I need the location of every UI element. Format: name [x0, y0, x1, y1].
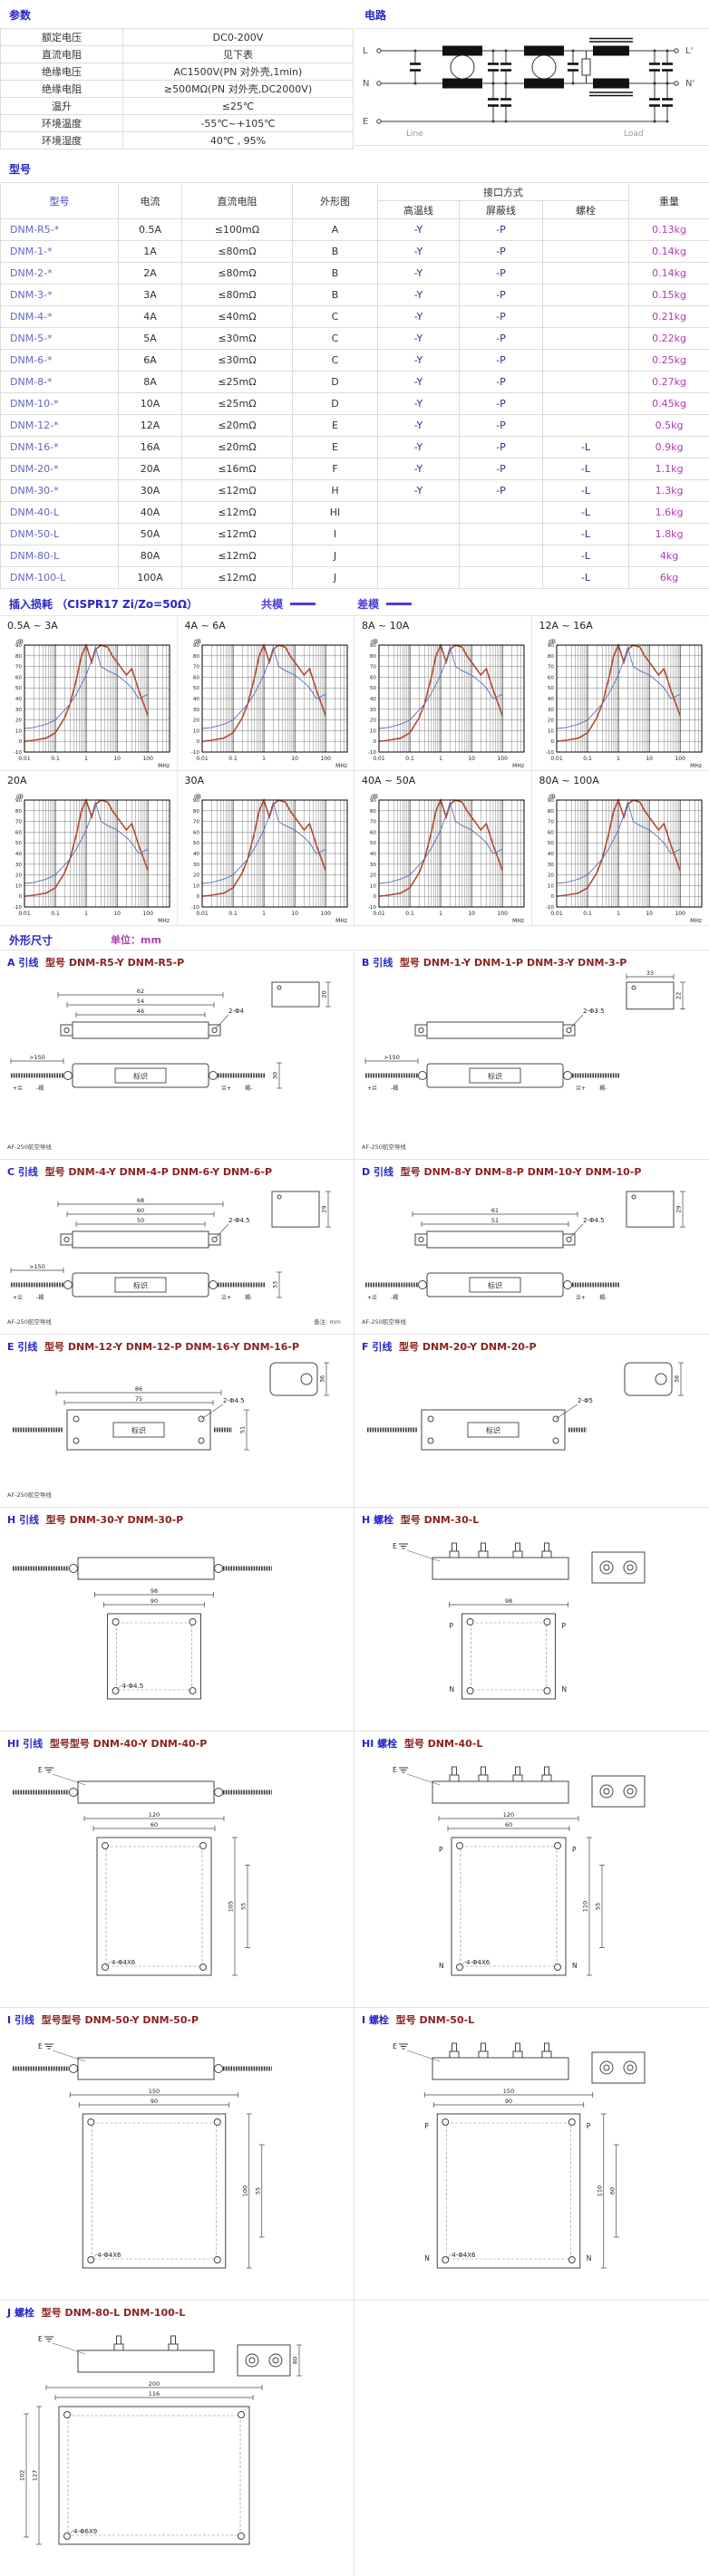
svg-text:100: 100: [497, 756, 508, 762]
svg-text:60: 60: [608, 2187, 616, 2195]
svg-text:dB: dB: [194, 639, 201, 645]
model-current: 1A: [119, 241, 182, 263]
svg-text:0.1: 0.1: [583, 911, 592, 917]
top-section: 参数 额定电压DC0-200V直流电阻见下表绝缘电压AC1500V(PN 对外壳…: [0, 0, 709, 154]
svg-text:80: 80: [370, 809, 377, 815]
svg-text:N: N: [587, 2254, 592, 2262]
model-list: 型号 DNM-40-L: [404, 1738, 483, 1750]
svg-text:1: 1: [262, 911, 266, 917]
dimension-cell-E: E 引线 型号 DNM-12-Y DNM-12-P DNM-16-Y DNM-1…: [0, 1335, 354, 1507]
svg-text:MHz: MHz: [690, 763, 702, 769]
model-weight: 1.1kg: [629, 458, 709, 480]
model-high_temp: [378, 567, 460, 589]
mount-kind: 引线: [15, 2014, 34, 2026]
model-shield: -P: [460, 263, 543, 285]
svg-text:MHz: MHz: [335, 763, 347, 769]
model-row: DNM-3-*3A≤80mΩB-Y-P0.15kg: [1, 285, 709, 306]
svg-text:>150: >150: [29, 1263, 45, 1270]
model-high_temp: [378, 502, 460, 524]
svg-text:E: E: [38, 1766, 43, 1774]
dimension-cell-header: H 螺栓 型号 DNM-30-L: [354, 1508, 709, 1527]
model-list: 型号 DNM-4-Y DNM-4-P DNM-6-Y DNM-6-P: [45, 1166, 272, 1178]
param-label: 环境温度: [1, 115, 123, 132]
svg-text:AF-250航空导线: AF-250航空导线: [362, 1317, 406, 1326]
chart-title: 8A ~ 10A: [354, 616, 531, 636]
legend-label: 共模: [261, 596, 283, 612]
outline-letter: H: [7, 1514, 15, 1526]
circuit-title: 电路: [355, 0, 709, 28]
mount-kind: 引线: [372, 1341, 392, 1353]
dimension-cell-header: E 引线 型号 DNM-12-Y DNM-12-P DNM-16-Y DNM-1…: [0, 1335, 354, 1354]
model-model: DNM-16-*: [1, 437, 119, 458]
svg-text:dB: dB: [549, 794, 556, 800]
param-value: AC1500V(PN 对外壳,1min): [123, 63, 354, 81]
svg-text:AF-250航空导线: AF-250航空导线: [7, 1491, 52, 1499]
svg-text:60: 60: [505, 1821, 512, 1828]
model-shield: -P: [460, 306, 543, 328]
svg-text:120: 120: [149, 1811, 160, 1819]
model-outline: F: [293, 458, 378, 480]
svg-text:2-Φ4.5: 2-Φ4.5: [583, 1217, 605, 1224]
svg-text:4-Φ4.5: 4-Φ4.5: [122, 1683, 144, 1690]
svg-text:2-Φ3.5: 2-Φ3.5: [583, 1008, 605, 1015]
models-table: 型号 电流 直流电阻 外形图 接口方式 重量 高温线 屏蔽线 螺栓 DNM-R5…: [0, 182, 709, 589]
dimensions-title: 外形尺寸: [9, 932, 53, 948]
param-label: 绝缘电阻: [1, 81, 123, 98]
technical-drawing: 86752-Φ4.5标识5136AF-250航空导线: [0, 1354, 352, 1502]
param-row: 温升≤25℃: [1, 98, 354, 115]
svg-text:4-Φ4X6: 4-Φ4X6: [452, 2252, 476, 2259]
svg-text:0.01: 0.01: [196, 911, 209, 917]
model-bolt: [543, 306, 629, 328]
svg-text:2-Φ4: 2-Φ4: [228, 1008, 244, 1015]
insertion-loss-chart: 30A-1001020304050607080900.010.1110100MH…: [178, 771, 355, 926]
svg-text:30: 30: [547, 863, 554, 868]
svg-text:0.01: 0.01: [18, 911, 31, 917]
svg-text:0: 0: [550, 739, 554, 745]
svg-text:20: 20: [321, 990, 328, 998]
model-high_temp: [378, 524, 460, 545]
svg-text:2-Φ4.5: 2-Φ4.5: [228, 1217, 250, 1224]
model-row: DNM-100-L100A≤12mΩJ-L6kg: [1, 567, 709, 589]
model-weight: 0.14kg: [629, 241, 709, 263]
col-header-model: 型号: [1, 183, 119, 219]
svg-text:-褐: -褐: [36, 1085, 44, 1092]
svg-text:30: 30: [192, 863, 199, 868]
dimensions-header: 外形尺寸 单位：mm: [0, 926, 709, 950]
dimension-cell-B: B 引线 型号 DNM-1-Y DNM-1-P DNM-3-Y DNM-3-P2…: [354, 950, 709, 1159]
outline-letter: I: [362, 2014, 365, 2026]
param-value: ≥500MΩ(PN 对外壳,DC2000V): [123, 81, 354, 98]
svg-text:标识: 标识: [486, 1426, 500, 1435]
model-model: DNM-4-*: [1, 306, 119, 328]
svg-text:0: 0: [550, 894, 554, 900]
model-row: DNM-20-*20A≤16mΩF-Y-P-L1.1kg: [1, 458, 709, 480]
svg-text:2-Φ4.5: 2-Φ4.5: [223, 1397, 245, 1404]
model-resistance: ≤16mΩ: [182, 458, 293, 480]
model-weight: 0.45kg: [629, 393, 709, 415]
model-shield: [460, 502, 543, 524]
model-resistance: ≤80mΩ: [182, 263, 293, 285]
model-outline: J: [293, 545, 378, 567]
dimension-cell-A: A 引线 型号 DNM-R5-Y DNM-R5-P6254462-Φ420标识>…: [0, 950, 354, 1159]
svg-text:50: 50: [192, 686, 199, 691]
dimension-cell-F: F 引线 型号 DNM-20-Y DNM-20-P2-Φ5标识38: [354, 1335, 709, 1507]
svg-text:10: 10: [113, 911, 121, 917]
model-outline: C: [293, 350, 378, 371]
model-model: DNM-80-L: [1, 545, 119, 567]
svg-text:N: N: [424, 2254, 430, 2262]
mount-kind: 引线: [18, 1166, 38, 1178]
svg-text:100: 100: [241, 2185, 248, 2196]
svg-text:+兰: +兰: [367, 1085, 377, 1092]
svg-text:70: 70: [192, 820, 199, 825]
chart-title: 80A ~ 100A: [532, 771, 709, 791]
model-list: 型号 DNM-12-Y DNM-12-P DNM-16-Y DNM-16-P: [44, 1341, 299, 1353]
model-outline: H: [293, 480, 378, 502]
dimension-cell-header: HI 引线 型号型号 DNM-40-Y DNM-40-P: [0, 1732, 354, 1751]
dimensions-section: 外形尺寸 单位：mm A 引线 型号 DNM-R5-Y DNM-R5-P6254…: [0, 926, 709, 2576]
svg-text:P: P: [439, 1846, 443, 1854]
svg-text:20: 20: [192, 719, 199, 724]
model-model: DNM-100-L: [1, 567, 119, 589]
model-list: 型号 DNM-80-L DNM-100-L: [42, 2307, 186, 2319]
param-row: 直流电阻见下表: [1, 46, 354, 63]
svg-text:70: 70: [192, 665, 199, 671]
svg-text:-褐: -褐: [391, 1294, 398, 1301]
model-high_temp: -Y: [378, 415, 460, 437]
model-resistance: ≤12mΩ: [182, 545, 293, 567]
legend-item: 差模: [357, 596, 412, 612]
model-weight: 0.25kg: [629, 350, 709, 371]
svg-text:60: 60: [15, 675, 23, 680]
svg-text:40: 40: [192, 697, 199, 702]
svg-text:90: 90: [151, 1597, 158, 1605]
technical-drawing: 6254462-Φ420标识>15030+兰-褐兰+褐-AF-250航空导线: [0, 970, 352, 1154]
dimension-row: I 引线 型号型号 DNM-50-Y DNM-50-PE150904-Φ4X61…: [0, 2007, 709, 2300]
model-model: DNM-3-*: [1, 285, 119, 306]
dimension-cell-H: H 引线 型号 DNM-30-Y DNM-30-P98904-Φ4.5: [0, 1508, 354, 1731]
model-current: 10A: [119, 393, 182, 415]
technical-drawing: E120604-Φ4X610555: [0, 1751, 352, 2002]
model-resistance: ≤12mΩ: [182, 524, 293, 545]
model-resistance: ≤80mΩ: [182, 241, 293, 263]
svg-text:+兰: +兰: [13, 1294, 23, 1301]
svg-text:>150: >150: [29, 1054, 45, 1061]
model-current: 100A: [119, 567, 182, 589]
svg-text:20: 20: [547, 719, 554, 724]
model-resistance: ≤12mΩ: [182, 480, 293, 502]
model-outline: J: [293, 567, 378, 589]
svg-text:E: E: [393, 2042, 397, 2050]
svg-text:20: 20: [192, 873, 199, 879]
col-header-weight: 重量: [629, 183, 709, 219]
model-model: DNM-12-*: [1, 415, 119, 437]
svg-text:105: 105: [228, 1901, 235, 1912]
model-outline: B: [293, 263, 378, 285]
model-high_temp: -Y: [378, 263, 460, 285]
model-shield: -P: [460, 393, 543, 415]
mount-kind: 螺栓: [369, 2014, 389, 2026]
svg-text:10: 10: [15, 728, 23, 734]
dimension-cell-header: HI 螺栓 型号 DNM-40-L: [354, 1732, 709, 1751]
outline-letter: H: [362, 1514, 370, 1526]
svg-text:兰+: 兰+: [576, 1294, 586, 1301]
model-resistance: ≤25mΩ: [182, 371, 293, 393]
dimension-row: H 引线 型号 DNM-30-Y DNM-30-P98904-Φ4.5H 螺栓 …: [0, 1507, 709, 1731]
model-shield: -P: [460, 415, 543, 437]
dimension-cell-I: I 引线 型号型号 DNM-50-Y DNM-50-PE150904-Φ4X61…: [0, 2008, 354, 2300]
param-row: 环境湿度40℃ , 95%: [1, 132, 354, 150]
svg-text:10: 10: [15, 883, 23, 889]
svg-text:E: E: [363, 117, 368, 127]
svg-text:30: 30: [15, 863, 23, 868]
svg-text:80: 80: [547, 654, 554, 660]
chart-title: 30A: [178, 771, 354, 791]
svg-text:46: 46: [137, 1008, 144, 1015]
svg-text:100: 100: [320, 756, 331, 762]
chart-plot: -1001020304050607080900.010.1110100MHzdB: [178, 636, 353, 770]
svg-text:50: 50: [547, 841, 554, 846]
chart-plot: -1001020304050607080900.010.1110100MHzdB: [178, 791, 353, 925]
chart-title: 12A ~ 16A: [532, 616, 709, 636]
model-current: 5A: [119, 328, 182, 350]
svg-text:70: 70: [370, 820, 377, 825]
model-high_temp: -Y: [378, 458, 460, 480]
model-current: 0.5A: [119, 219, 182, 241]
outline-letter: HI: [7, 1738, 19, 1750]
svg-text:0: 0: [373, 739, 376, 745]
svg-text:4-Φ4X6: 4-Φ4X6: [112, 1959, 136, 1966]
outline-letter: HI: [362, 1738, 374, 1750]
parameters-block: 参数 额定电压DC0-200V直流电阻见下表绝缘电压AC1500V(PN 对外壳…: [0, 0, 355, 154]
svg-text:80: 80: [192, 654, 199, 660]
dimension-cell-D: D 引线 型号 DNM-8-Y DNM-8-P DNM-10-Y DNM-10-…: [354, 1160, 709, 1334]
svg-text:AF-250航空导线: AF-250航空导线: [7, 1143, 52, 1151]
svg-text:4-Φ4X6: 4-Φ4X6: [97, 2252, 121, 2259]
svg-text:20: 20: [547, 873, 554, 879]
model-high_temp: -Y: [378, 480, 460, 502]
model-weight: 1.6kg: [629, 502, 709, 524]
model-weight: 0.21kg: [629, 306, 709, 328]
chart-title: 0.5A ~ 3A: [0, 616, 177, 636]
param-value: DC0-200V: [123, 29, 354, 46]
svg-text:+兰: +兰: [367, 1294, 377, 1301]
svg-text:N: N: [572, 1962, 578, 1970]
svg-text:0: 0: [18, 894, 22, 900]
svg-text:P: P: [561, 1622, 566, 1630]
svg-text:50: 50: [15, 686, 23, 691]
svg-text:0: 0: [18, 739, 22, 745]
svg-text:98: 98: [505, 1597, 512, 1605]
param-label: 环境湿度: [1, 132, 123, 150]
mount-kind: 引线: [23, 1738, 43, 1750]
outline-letter: A: [7, 957, 15, 969]
dimension-cell-C: C 引线 型号 DNM-4-Y DNM-4-P DNM-6-Y DNM-6-P6…: [0, 1160, 354, 1334]
svg-text:0: 0: [196, 739, 199, 745]
insertion-loss-header: 插入损耗 （CISPR17 Zi/Zo=50Ω） 共模差模: [0, 589, 709, 615]
svg-text:36: 36: [319, 1375, 326, 1383]
model-high_temp: -Y: [378, 328, 460, 350]
svg-text:10: 10: [291, 756, 298, 762]
model-shield: -P: [460, 437, 543, 458]
model-list: 型号型号 DNM-40-Y DNM-40-P: [50, 1738, 208, 1750]
model-shield: -P: [460, 241, 543, 263]
svg-text:100: 100: [497, 911, 508, 917]
col-header-high-temp-wire: 高温线: [378, 201, 460, 219]
svg-text:P: P: [587, 2122, 591, 2130]
model-bolt: [543, 241, 629, 263]
chart-title: 4A ~ 6A: [178, 616, 354, 636]
model-outline: I: [293, 524, 378, 545]
svg-text:标识: 标识: [131, 1426, 146, 1435]
model-resistance: ≤12mΩ: [182, 567, 293, 589]
chart-title: 40A ~ 50A: [354, 771, 531, 791]
model-weight: 0.14kg: [629, 263, 709, 285]
param-row: 绝缘电压AC1500V(PN 对外壳,1min): [1, 63, 354, 81]
svg-text:10: 10: [370, 728, 377, 734]
model-row: DNM-10-*10A≤25mΩD-Y-P0.45kg: [1, 393, 709, 415]
svg-text:E: E: [393, 1766, 397, 1774]
model-row: DNM-8-*8A≤25mΩD-Y-P0.27kg: [1, 371, 709, 393]
svg-text:Line: Line: [406, 130, 423, 139]
svg-text:51: 51: [491, 1217, 499, 1224]
svg-text:80: 80: [370, 654, 377, 660]
dimension-row: J 螺栓 型号 DNM-80-L DNM-100-L80E2001164-Φ6X…: [0, 2300, 709, 2576]
svg-text:150: 150: [503, 2088, 514, 2095]
svg-text:60: 60: [370, 830, 377, 835]
svg-text:MHz: MHz: [158, 918, 170, 924]
dimension-row: HI 引线 型号型号 DNM-40-Y DNM-40-PE120604-Φ4X6…: [0, 1731, 709, 2007]
col-header-outline: 外形图: [293, 183, 378, 219]
model-shield: [460, 545, 543, 567]
svg-text:L: L: [363, 46, 368, 56]
model-model: DNM-2-*: [1, 263, 119, 285]
model-current: 20A: [119, 458, 182, 480]
svg-text:0.1: 0.1: [228, 911, 238, 917]
svg-text:dB: dB: [371, 639, 378, 645]
params-table: 额定电压DC0-200V直流电阻见下表绝缘电压AC1500V(PN 对外壳,1m…: [0, 28, 354, 150]
svg-text:30: 30: [370, 708, 377, 713]
model-current: 40A: [119, 502, 182, 524]
model-model: DNM-10-*: [1, 393, 119, 415]
model-row: DNM-5-*5A≤30mΩC-Y-P0.22kg: [1, 328, 709, 350]
technical-drawing: 2-Φ3.52233标识>150+兰-褐兰+褐-AF-250航空导线: [354, 970, 706, 1154]
model-outline: HI: [293, 502, 378, 524]
chart-legend: 共模差模: [261, 596, 453, 612]
model-shield: [460, 567, 543, 589]
svg-text:AF-250航空导线: AF-250航空导线: [362, 1143, 406, 1151]
model-bolt: -L: [543, 524, 629, 545]
model-current: 6A: [119, 350, 182, 371]
svg-text:80: 80: [15, 809, 23, 815]
model-outline: E: [293, 415, 378, 437]
svg-text:MHz: MHz: [512, 763, 524, 769]
technical-drawing: E150904-Φ4X610055: [0, 2027, 352, 2295]
model-weight: 1.8kg: [629, 524, 709, 545]
outline-letter: D: [362, 1166, 370, 1178]
model-weight: 4kg: [629, 545, 709, 567]
params-title: 参数: [0, 0, 355, 28]
svg-text:P: P: [424, 2122, 429, 2130]
model-resistance: ≤100mΩ: [182, 219, 293, 241]
dimension-row: A 引线 型号 DNM-R5-Y DNM-R5-P6254462-Φ420标识>…: [0, 950, 709, 1159]
dimension-row: E 引线 型号 DNM-12-Y DNM-12-P DNM-16-Y DNM-1…: [0, 1334, 709, 1507]
svg-text:0.01: 0.01: [196, 756, 209, 762]
svg-text:N': N': [685, 79, 694, 89]
technical-drawing: E150904-Φ4X6PPNN11060: [354, 2027, 706, 2295]
svg-text:1: 1: [262, 756, 266, 762]
model-resistance: ≤30mΩ: [182, 328, 293, 350]
model-list: 型号 DNM-8-Y DNM-8-P DNM-10-Y DNM-10-P: [401, 1166, 642, 1178]
param-row: 绝缘电阻≥500MΩ(PN 对外壳,DC2000V): [1, 81, 354, 98]
col-header-bolt: 螺栓: [543, 201, 629, 219]
svg-text:60: 60: [547, 675, 554, 680]
svg-text:标识: 标识: [488, 1072, 502, 1081]
model-row: DNM-4-*4A≤40mΩC-Y-P0.21kg: [1, 306, 709, 328]
model-bolt: -L: [543, 567, 629, 589]
dimension-cell-HI2: HI 螺栓 型号 DNM-40-LE120604-Φ4X6PPNN11055: [354, 1732, 709, 2007]
outline-letter: B: [362, 957, 369, 969]
svg-text:1: 1: [84, 756, 88, 762]
svg-text:110: 110: [596, 2185, 603, 2196]
svg-text:1: 1: [84, 911, 88, 917]
model-shield: -P: [460, 219, 543, 241]
svg-text:4-Φ4X6: 4-Φ4X6: [466, 1959, 490, 1966]
svg-text:55: 55: [254, 2187, 261, 2195]
svg-text:55: 55: [240, 1903, 248, 1910]
model-list: 型号 DNM-50-L: [396, 2014, 475, 2026]
dimension-cell-header: D 引线 型号 DNM-8-Y DNM-8-P DNM-10-Y DNM-10-…: [354, 1160, 709, 1179]
svg-text:60: 60: [192, 675, 199, 680]
svg-text:10: 10: [468, 756, 475, 762]
model-bolt: -L: [543, 545, 629, 567]
outline-letter: I: [7, 2014, 11, 2026]
svg-text:N: N: [450, 1685, 455, 1693]
param-label: 绝缘电压: [1, 63, 123, 81]
svg-text:100: 100: [142, 756, 153, 762]
model-row: DNM-2-*2A≤80mΩB-Y-P0.14kg: [1, 263, 709, 285]
svg-text:10: 10: [646, 911, 653, 917]
svg-text:90: 90: [151, 2098, 158, 2105]
dimension-cell-header: B 引线 型号 DNM-1-Y DNM-1-P DNM-3-Y DNM-3-P: [354, 950, 709, 970]
model-weight: 1.3kg: [629, 480, 709, 502]
svg-text:0.1: 0.1: [405, 911, 414, 917]
model-list: 型号 DNM-30-Y DNM-30-P: [46, 1514, 184, 1526]
dimension-cell-H2: H 螺栓 型号 DNM-30-LE98PPNN: [354, 1508, 709, 1731]
model-shield: -P: [460, 480, 543, 502]
svg-text:1: 1: [439, 756, 442, 762]
model-row: DNM-30-*30A≤12mΩH-Y-P-L1.3kg: [1, 480, 709, 502]
chart-plot: -1001020304050607080900.010.1110100MHzdB: [532, 791, 707, 925]
mount-kind: 螺栓: [377, 1738, 397, 1750]
model-high_temp: -Y: [378, 285, 460, 306]
model-outline: C: [293, 306, 378, 328]
svg-text:30: 30: [272, 1072, 279, 1079]
outline-letter: C: [7, 1166, 15, 1178]
svg-text:1: 1: [617, 911, 620, 917]
model-model: DNM-1-*: [1, 241, 119, 263]
svg-text:50: 50: [15, 841, 23, 846]
svg-text:10: 10: [192, 728, 199, 734]
svg-text:褐-: 褐-: [599, 1085, 607, 1092]
svg-text:20: 20: [15, 873, 23, 879]
svg-text:40: 40: [15, 697, 23, 702]
svg-text:70: 70: [15, 820, 23, 825]
svg-text:22: 22: [675, 992, 683, 999]
datasheet-page: 参数 额定电压DC0-200V直流电阻见下表绝缘电压AC1500V(PN 对外壳…: [0, 0, 709, 2576]
svg-text:标识: 标识: [488, 1281, 502, 1290]
